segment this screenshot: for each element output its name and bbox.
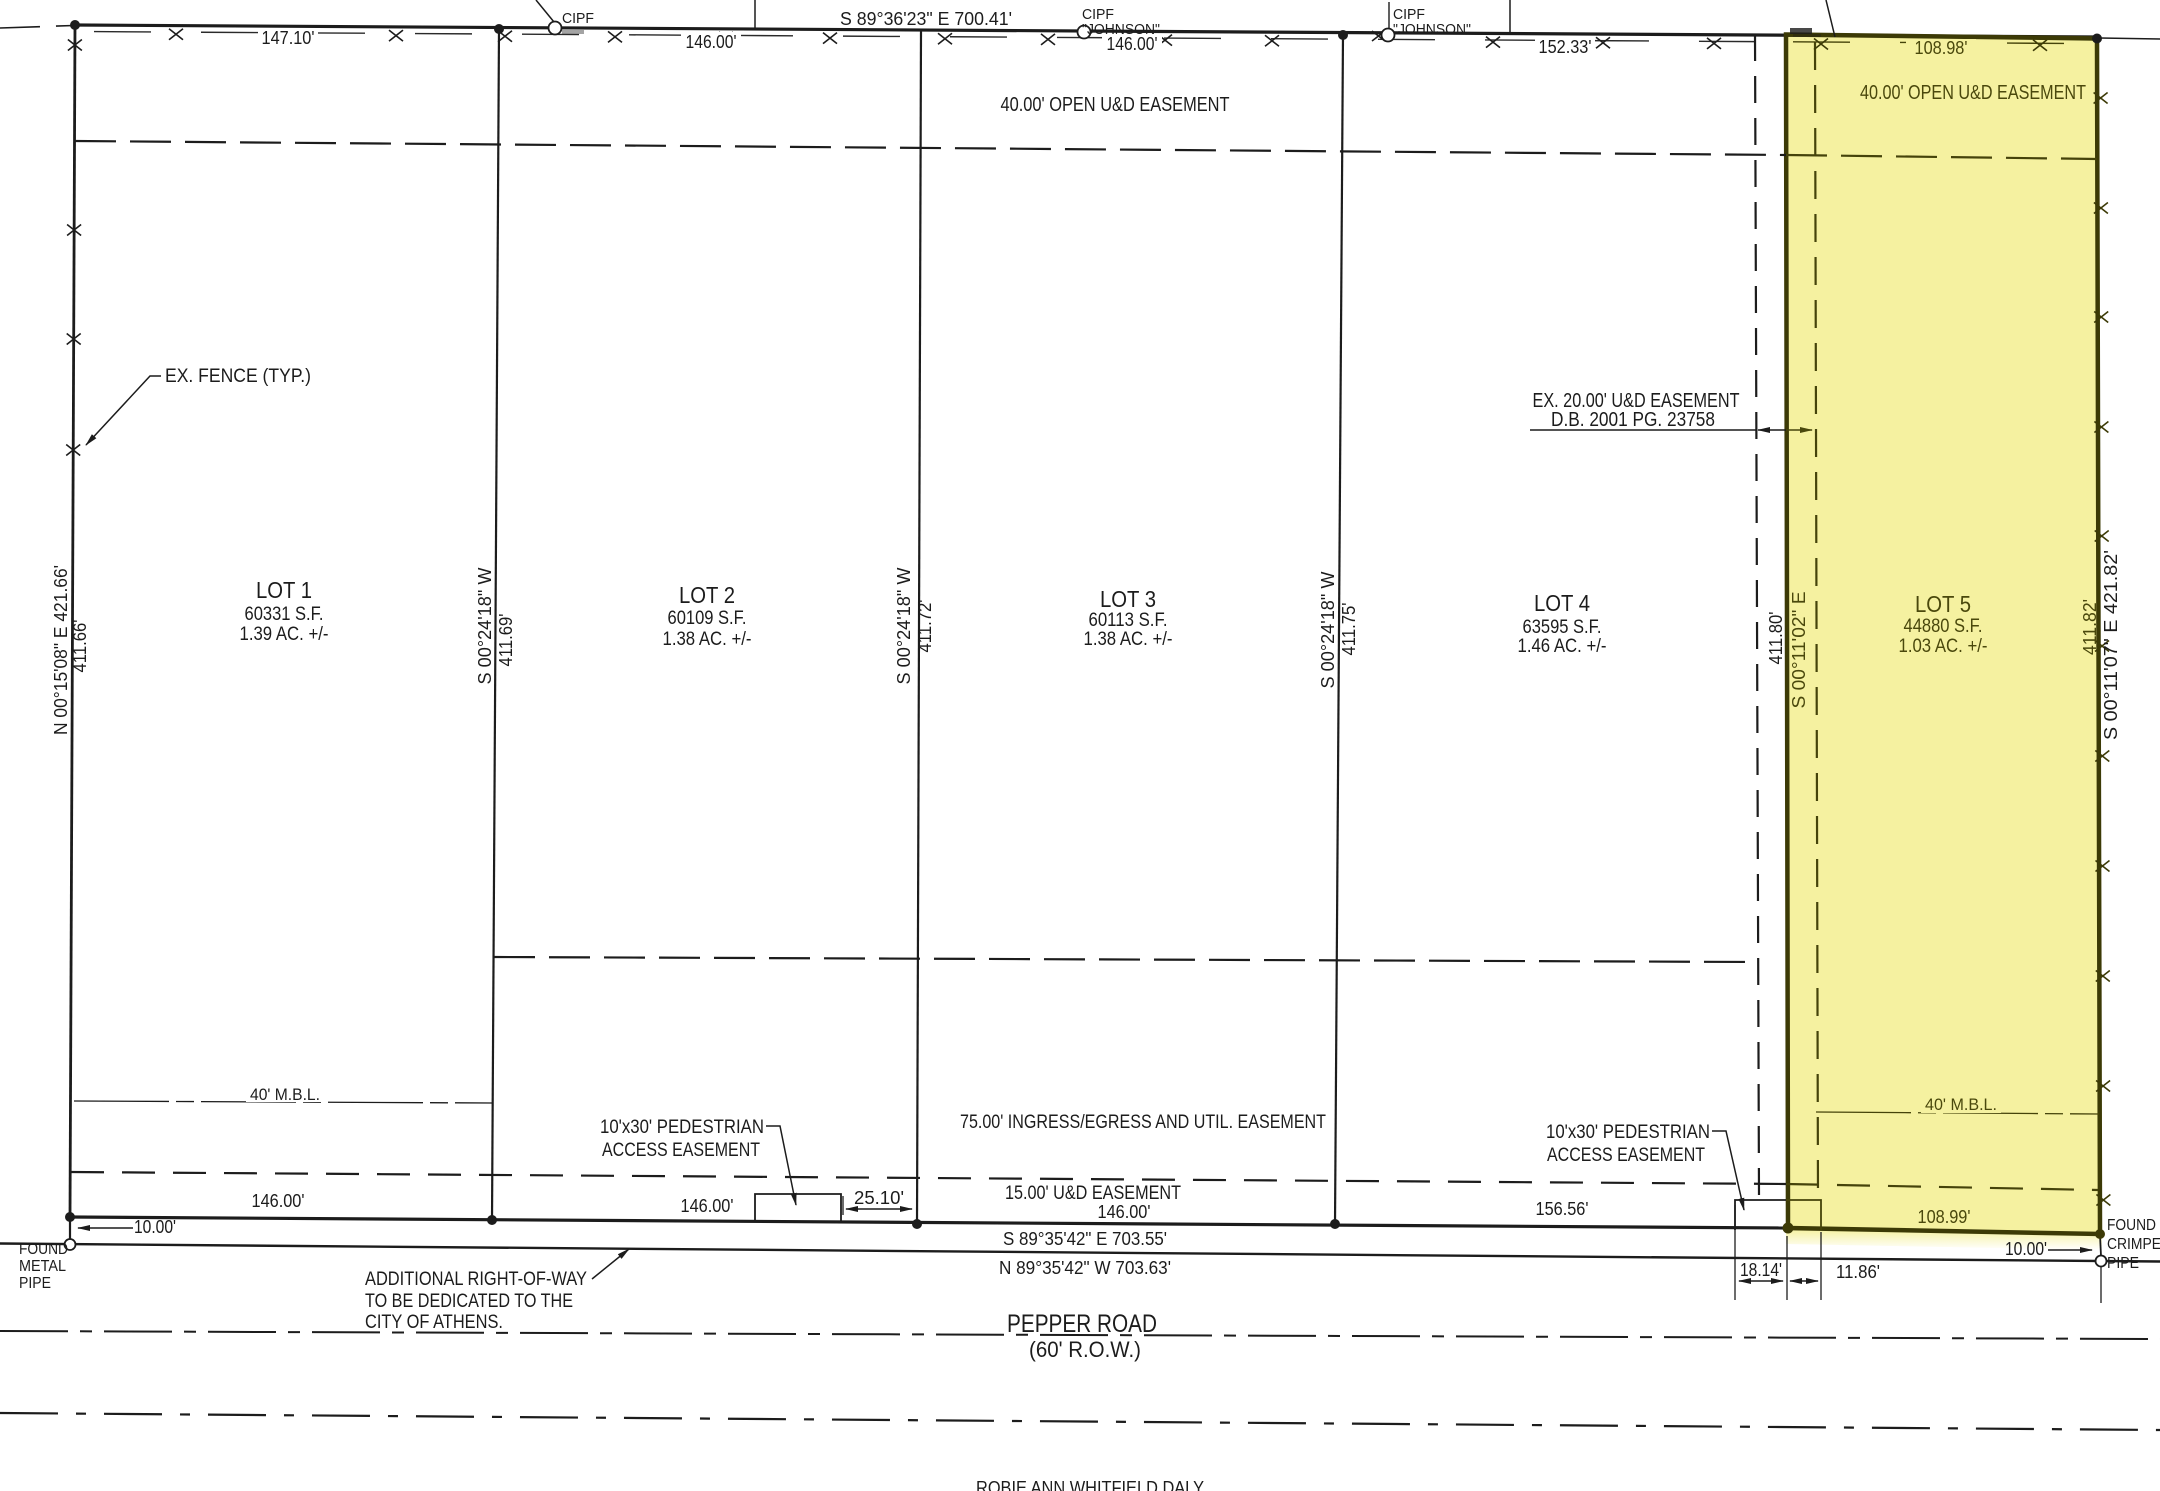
svg-text:411.66': 411.66' bbox=[70, 620, 90, 673]
svg-text:CITY OF ATHENS.: CITY OF ATHENS. bbox=[365, 1311, 503, 1333]
svg-text:10.00': 10.00' bbox=[2005, 1239, 2047, 1259]
svg-text:40' M.B.L.: 40' M.B.L. bbox=[250, 1086, 320, 1104]
svg-text:18.14': 18.14' bbox=[1740, 1260, 1782, 1280]
svg-text:(60' R.O.W.): (60' R.O.W.) bbox=[1029, 1337, 1141, 1362]
svg-text:LOT 1: LOT 1 bbox=[256, 577, 312, 603]
svg-text:146.00': 146.00' bbox=[686, 32, 737, 52]
svg-text:N 89°35'42" W 703.63': N 89°35'42" W 703.63' bbox=[999, 1258, 1171, 1278]
svg-text:108.99': 108.99' bbox=[1918, 1207, 1971, 1227]
svg-text:147.10': 147.10' bbox=[262, 28, 315, 48]
svg-text:411.69': 411.69' bbox=[496, 614, 516, 667]
svg-text:1.38 AC. +/-: 1.38 AC. +/- bbox=[663, 629, 752, 650]
svg-text:S 00°24'18" W: S 00°24'18" W bbox=[1318, 571, 1338, 688]
svg-text:CIPF: CIPF bbox=[562, 10, 594, 27]
svg-text:40.00' OPEN U&D EASEMENT: 40.00' OPEN U&D EASEMENT bbox=[1860, 81, 2086, 104]
svg-text:1.03 AC. +/-: 1.03 AC. +/- bbox=[1899, 636, 1988, 657]
svg-text:N 00°15'08" E 421.66': N 00°15'08" E 421.66' bbox=[51, 565, 71, 735]
svg-text:LOT 5: LOT 5 bbox=[1915, 591, 1971, 617]
svg-text:60113 S.F.: 60113 S.F. bbox=[1089, 610, 1168, 631]
svg-text:ROBIE ANN WHITFIELD DALY: ROBIE ANN WHITFIELD DALY bbox=[976, 1478, 1204, 1491]
svg-text:63595 S.F.: 63595 S.F. bbox=[1523, 617, 1602, 638]
svg-text:75.00' INGRESS/EGRESS AND UTIL: 75.00' INGRESS/EGRESS AND UTIL. EASEMENT bbox=[960, 1111, 1326, 1133]
svg-text:1.38 AC. +/-: 1.38 AC. +/- bbox=[1084, 629, 1173, 650]
svg-text:FOUND: FOUND bbox=[19, 1241, 68, 1258]
svg-text:LOT 3: LOT 3 bbox=[1100, 586, 1156, 612]
svg-text:40.00' OPEN U&D EASEMENT: 40.00' OPEN U&D EASEMENT bbox=[1001, 93, 1230, 116]
svg-text:METAL: METAL bbox=[19, 1258, 66, 1275]
svg-text:PIPE: PIPE bbox=[2107, 1255, 2139, 1272]
svg-text:156.56': 156.56' bbox=[1536, 1199, 1589, 1219]
svg-text:S 89°35'42" E 703.55': S 89°35'42" E 703.55' bbox=[1003, 1229, 1167, 1249]
svg-text:10.00': 10.00' bbox=[134, 1217, 176, 1237]
svg-text:411.72': 411.72' bbox=[915, 600, 935, 653]
svg-text:LOT 2: LOT 2 bbox=[679, 582, 735, 608]
svg-text:60331 S.F.: 60331 S.F. bbox=[245, 604, 324, 625]
svg-text:40' M.B.L.: 40' M.B.L. bbox=[1925, 1096, 1997, 1114]
svg-text:ADDITIONAL RIGHT-OF-WAY: ADDITIONAL RIGHT-OF-WAY bbox=[365, 1268, 587, 1290]
svg-text:1.39 AC. +/-: 1.39 AC. +/- bbox=[240, 624, 329, 645]
svg-text:CRIMPED: CRIMPED bbox=[2107, 1236, 2160, 1253]
svg-text:D.B. 2001 PG. 23758: D.B. 2001 PG. 23758 bbox=[1551, 409, 1715, 431]
svg-text:PEPPER ROAD: PEPPER ROAD bbox=[1007, 1310, 1157, 1338]
svg-text:S 00°11'02" E: S 00°11'02" E bbox=[1789, 592, 1809, 709]
svg-text:44880 S.F.: 44880 S.F. bbox=[1904, 616, 1983, 637]
svg-text:146.00': 146.00' bbox=[681, 1196, 734, 1216]
svg-text:15.00' U&D EASEMENT: 15.00' U&D EASEMENT bbox=[1005, 1182, 1181, 1204]
svg-text:411.75': 411.75' bbox=[1339, 603, 1359, 656]
svg-text:ACCESS EASEMENT: ACCESS EASEMENT bbox=[1547, 1144, 1705, 1166]
svg-text:LOT 4: LOT 4 bbox=[1534, 590, 1590, 616]
svg-text:"JOHNSON": "JOHNSON" bbox=[1082, 21, 1160, 38]
svg-text:1.46 AC. +/-: 1.46 AC. +/- bbox=[1518, 636, 1607, 657]
svg-text:FOUND: FOUND bbox=[2107, 1217, 2156, 1234]
svg-text:TO BE DEDICATED TO THE: TO BE DEDICATED TO THE bbox=[365, 1290, 573, 1312]
svg-text:S 00°24'18" W: S 00°24'18" W bbox=[475, 567, 495, 684]
svg-text:411.82': 411.82' bbox=[2080, 599, 2100, 655]
svg-text:PIPE: PIPE bbox=[19, 1275, 51, 1292]
svg-text:EX. FENCE (TYP.): EX. FENCE (TYP.) bbox=[165, 365, 311, 387]
svg-text:11.86': 11.86' bbox=[1836, 1262, 1880, 1282]
svg-text:411.80': 411.80' bbox=[1766, 612, 1786, 665]
svg-text:146.00': 146.00' bbox=[252, 1191, 305, 1211]
svg-text:152.33': 152.33' bbox=[1539, 37, 1592, 57]
svg-text:S 89°36'23" E 700.41': S 89°36'23" E 700.41' bbox=[840, 9, 1012, 29]
svg-text:10'x30' PEDESTRIAN: 10'x30' PEDESTRIAN bbox=[600, 1116, 764, 1138]
svg-text:ACCESS EASEMENT: ACCESS EASEMENT bbox=[602, 1139, 760, 1161]
svg-text:108.98': 108.98' bbox=[1915, 38, 1968, 58]
svg-text:S 00°24'18" W: S 00°24'18" W bbox=[894, 567, 914, 684]
svg-text:10'x30' PEDESTRIAN: 10'x30' PEDESTRIAN bbox=[1546, 1121, 1710, 1143]
svg-text:S 00°11'07" E 421.82': S 00°11'07" E 421.82' bbox=[2101, 550, 2121, 740]
svg-text:"JOHNSON": "JOHNSON" bbox=[1393, 21, 1471, 38]
svg-text:146.00': 146.00' bbox=[1098, 1202, 1151, 1222]
svg-text:25.10': 25.10' bbox=[854, 1188, 904, 1208]
svg-text:60109 S.F.: 60109 S.F. bbox=[668, 608, 747, 629]
